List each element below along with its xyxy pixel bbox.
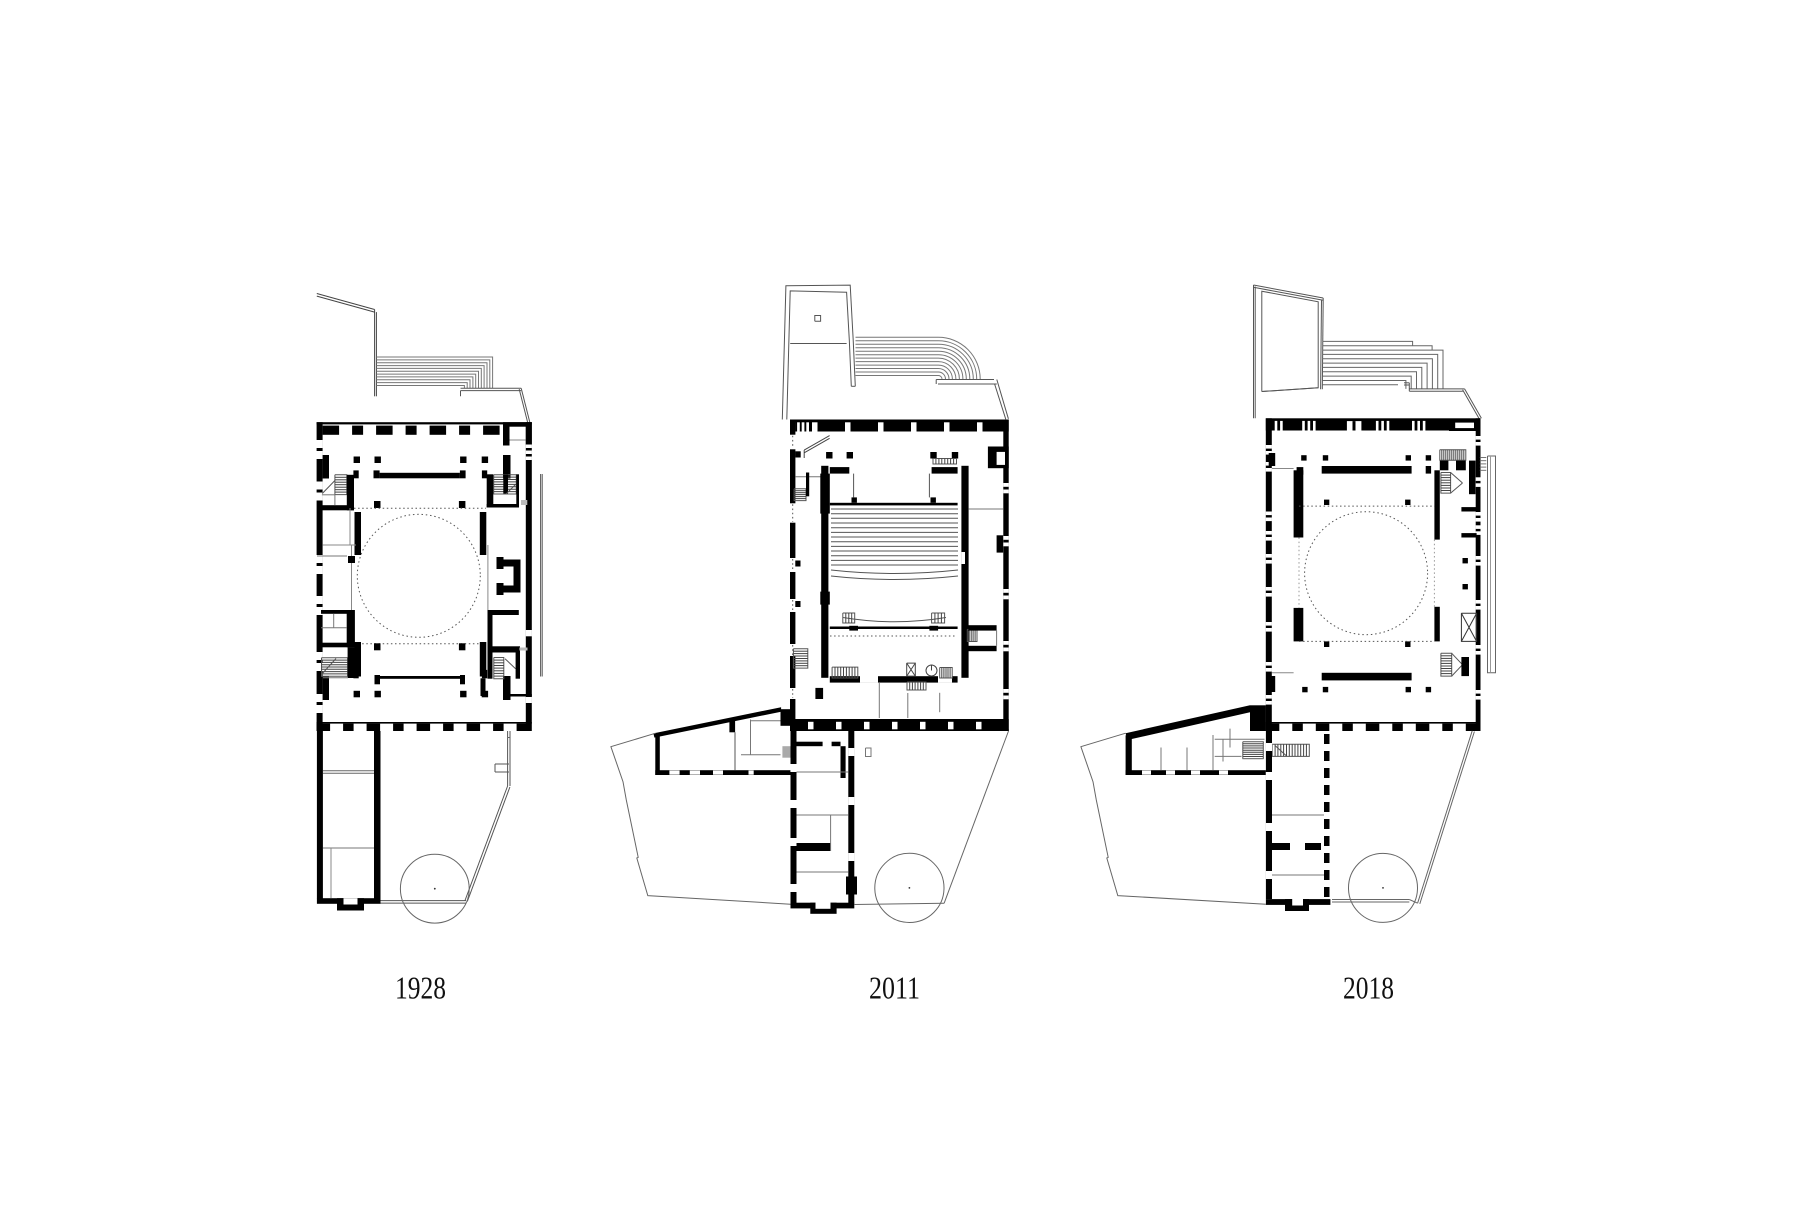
svg-text:2018: 2018 bbox=[1343, 971, 1394, 1006]
svg-text:2011: 2011 bbox=[869, 971, 920, 1006]
svg-text:1928: 1928 bbox=[395, 971, 446, 1006]
